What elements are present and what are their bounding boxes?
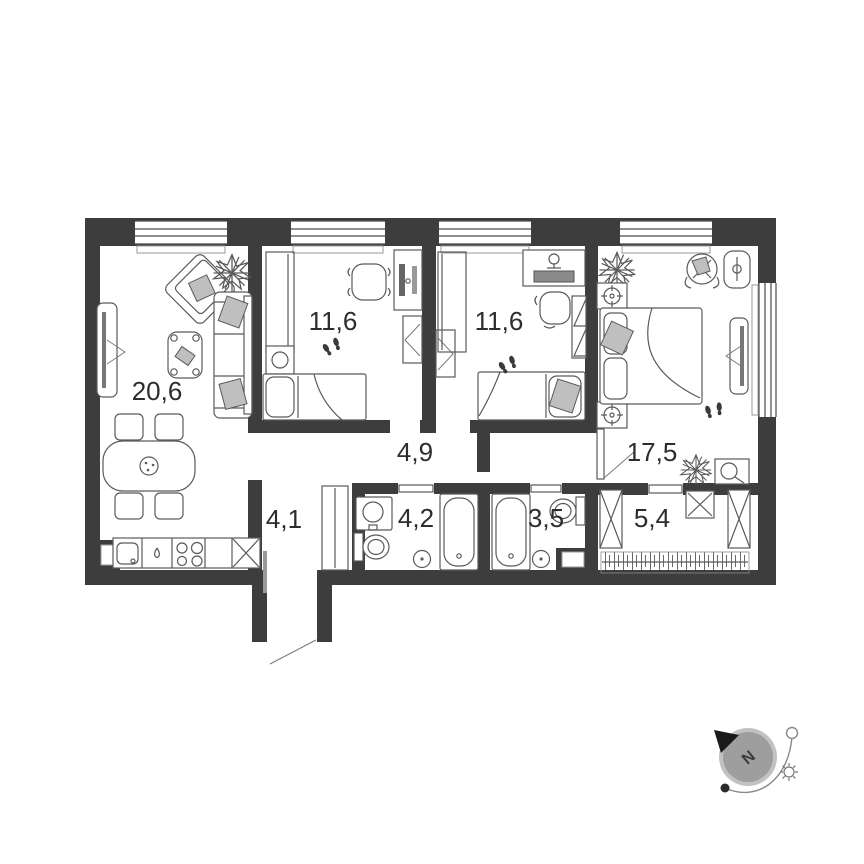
bed-icon [263,374,366,420]
room-area-label-bathroom2: 3,5 [528,503,564,533]
desk-chair-icon [348,264,390,300]
bathtub-icon [492,494,530,570]
nightstand-icon [266,346,294,374]
closet-furniture [600,490,750,573]
wardrobe-x-icon [728,490,750,548]
floor-plan-canvas: 20,6 11,6 11,6 17,5 4,9 4,1 4,2 3,5 5,4 … [0,0,864,864]
room-area-label-bedroom3: 17,5 [627,437,678,467]
window-bedroom-3-side [752,283,776,417]
desk-chair-icon [535,292,575,328]
nightstand-lamp-icon [597,283,627,309]
floor-drain-icon [533,551,550,568]
washbasin-icon [356,497,392,530]
room-area-label-bathroom1: 4,2 [398,503,434,533]
window-bedroom-3 [620,221,712,253]
toilet-icon [354,533,389,561]
plant-icon [599,252,634,287]
armchair-icon [685,254,719,288]
room-area-label-corridor: 4,1 [266,504,302,534]
sun-icon [780,763,798,781]
window-living [135,221,227,253]
bathtub-icon [440,494,478,570]
footprints-icon [701,398,725,422]
vanity-icon [715,459,749,484]
kitchen-counter-icon [113,538,260,568]
tv-console-icon [726,318,748,394]
room-area-label-hallway: 4,9 [397,437,433,467]
room-area-label-closet: 5,4 [634,503,670,533]
hanger-rail-icon [601,552,749,573]
door-bathroom-2 [531,485,561,492]
tv-console-icon [97,303,125,397]
coffee-table-icon [168,332,202,378]
wardrobe-x-icon [600,490,622,548]
plant-icon [681,455,711,485]
door-bedroom-1 [403,316,422,363]
bathroom-shaft [562,552,584,567]
wardrobe-rail-icon [322,486,348,570]
double-bed-icon [600,308,702,404]
room-area-label-bedroom1: 11,6 [309,306,358,336]
cabinet-icon [572,296,586,358]
dining-set-icon [103,414,195,519]
floor-plan: 20,6 11,6 11,6 17,5 4,9 4,1 4,2 3,5 5,4 … [0,0,864,864]
room-area-label-bedroom2: 11,6 [475,306,524,336]
side-table-icon [724,251,750,288]
window-bedroom-1 [291,221,385,253]
room-area-label-living: 20,6 [132,376,183,406]
window-bedroom-2 [439,221,531,253]
desk-icon [523,250,585,286]
corridor-furniture [322,486,348,570]
door-bedroom-2 [436,330,455,377]
nightstand-lamp-icon [597,402,627,428]
footprints-icon [321,337,341,356]
living-kitchen-furniture [97,252,260,568]
bed-icon [478,372,585,420]
desk-icon [394,250,422,310]
door-bathroom-1 [399,485,433,492]
wardrobe-icon [266,252,294,352]
entrance-door [263,551,316,664]
sofa-icon [214,292,252,418]
floor-drain-icon [414,551,431,568]
door-closet [649,485,682,493]
compass-icon: N [714,728,798,793]
washer-icon [686,491,714,518]
